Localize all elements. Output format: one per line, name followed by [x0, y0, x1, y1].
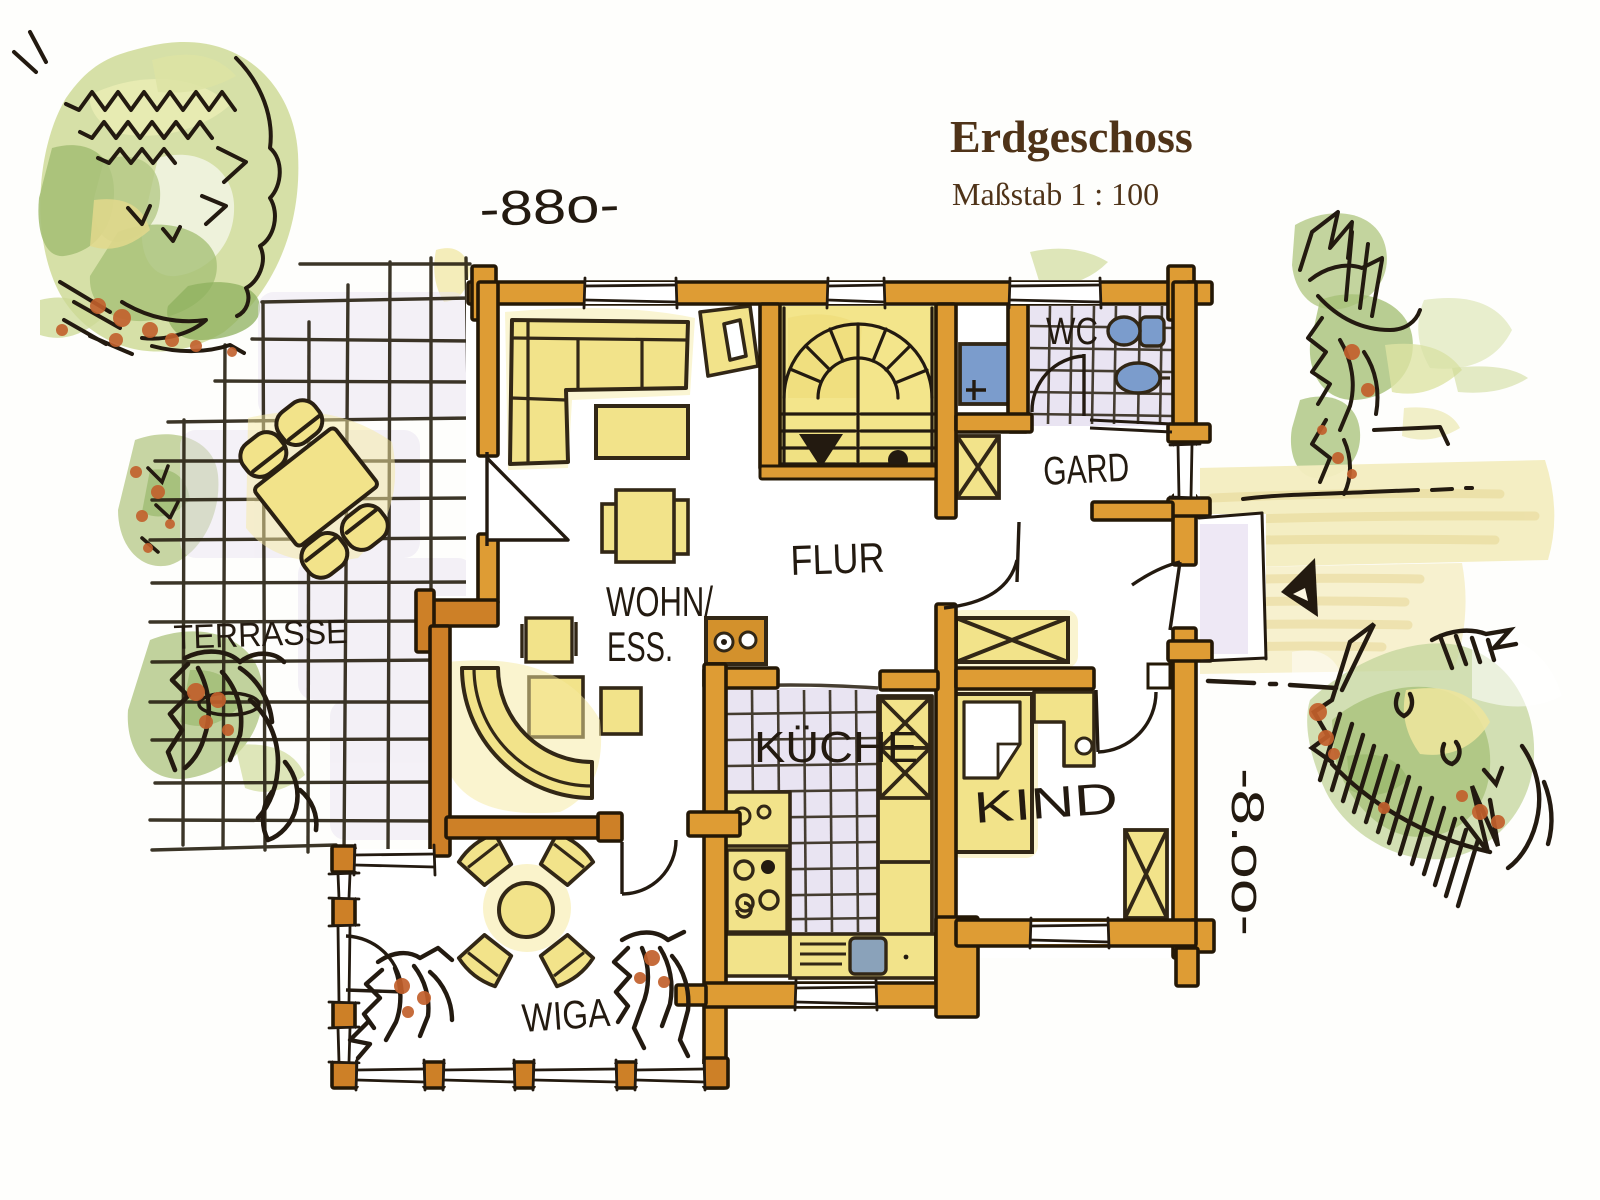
svg-text:Maßstab 1 : 100: Maßstab 1 : 100 — [952, 176, 1159, 212]
svg-text:KIND: KIND — [972, 774, 1119, 833]
svg-text:Erdgeschoss: Erdgeschoss — [950, 111, 1193, 162]
svg-text:WC: WC — [1046, 311, 1098, 353]
svg-text:WIGA: WIGA — [521, 991, 612, 1041]
svg-text:-8.oo-: -8.oo- — [1222, 768, 1273, 936]
svg-text:ESS.: ESS. — [607, 623, 673, 670]
svg-text:-88o-: -88o- — [478, 178, 620, 237]
svg-text:FLUR: FLUR — [790, 534, 886, 584]
svg-text:WOHN/: WOHN/ — [606, 578, 713, 625]
svg-text:KÜCHE: KÜCHE — [754, 723, 918, 772]
svg-text:TERRASSE: TERRASSE — [173, 613, 348, 657]
svg-text:GARD: GARD — [1042, 446, 1130, 494]
